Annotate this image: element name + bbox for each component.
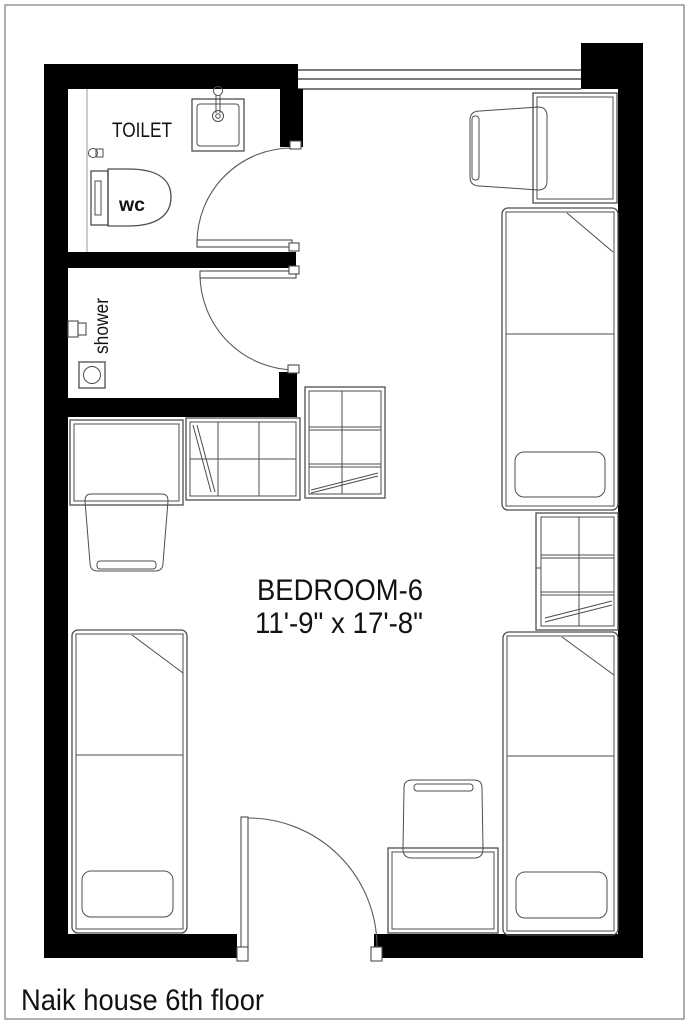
- shower-room-label: shower: [92, 297, 113, 354]
- chair-seat: [403, 780, 483, 858]
- toilet-door: [197, 141, 301, 251]
- shelf-unit-center: [186, 418, 300, 500]
- door-stop: [289, 243, 299, 251]
- shower-mixer-icon: [68, 321, 86, 337]
- door-stop: [371, 947, 382, 961]
- desk-middle-left: [70, 420, 183, 505]
- chair-backrest: [472, 116, 479, 180]
- chair-backrest: [414, 784, 473, 791]
- bed-right-lower: [503, 632, 618, 935]
- chair-backrest: [97, 561, 156, 569]
- wall-column-shower-door: [279, 372, 297, 417]
- bed-fold-mark: [567, 213, 613, 252]
- sink-drain-icon: [213, 111, 224, 122]
- wall-column-toilet-door: [280, 89, 303, 147]
- wc-label: wc: [118, 195, 145, 216]
- toilet-door-swing-arc: [197, 148, 292, 243]
- wall-bottom-left: [44, 934, 237, 958]
- chair-seat: [470, 107, 547, 190]
- pillow: [82, 871, 173, 917]
- desk-bottom: [388, 848, 498, 933]
- window-top: [298, 70, 581, 89]
- entry-door-leaf: [241, 817, 248, 950]
- pillow: [516, 872, 607, 918]
- toilet-room-label: TOILET: [112, 119, 172, 142]
- door-stop: [289, 266, 299, 274]
- wall-shower-south: [68, 398, 297, 417]
- page-border: [5, 5, 684, 1019]
- wardrobe-right: [536, 513, 618, 630]
- shower-door-leaf: [200, 271, 296, 278]
- room-name-label: BEDROOM-6: [257, 574, 423, 607]
- shelf-brace: [311, 473, 378, 490]
- wall-right: [618, 89, 643, 958]
- wall-left: [44, 64, 68, 958]
- door-stop: [237, 947, 248, 961]
- bed-fold-mark: [132, 635, 183, 673]
- toilet-door-leaf: [197, 240, 292, 247]
- bed-right-upper: [502, 208, 618, 510]
- chair-top-right: [470, 107, 547, 190]
- pillow: [515, 452, 605, 497]
- entry-door: [237, 817, 382, 961]
- bed-fold-mark: [562, 637, 614, 675]
- entry-door-swing-arc: [248, 818, 377, 947]
- room-dimensions-label: 11'-9" x 17'-8": [255, 607, 423, 640]
- wall-block-top-right: [581, 43, 643, 89]
- chair-bottom: [403, 780, 483, 858]
- wall-top-left: [44, 64, 298, 89]
- shower-door-swing-arc: [200, 274, 296, 370]
- wall-bottom-right: [374, 934, 643, 958]
- door-stop: [288, 365, 299, 373]
- floor-plan-page: TOILET wc shower BEDROOM-6 11'-9" x 17'-…: [0, 0, 695, 1024]
- wall-toilet-shower-divider: [68, 252, 296, 268]
- shelf-unit-right-of-center: [305, 387, 385, 498]
- toilet-paper-holder-icon: [89, 149, 104, 158]
- bed-bottom-left: [72, 630, 187, 933]
- sink: [192, 87, 244, 152]
- door-stop: [290, 141, 301, 149]
- plan-caption: Naik house 6th floor: [21, 984, 264, 1017]
- shower-door: [200, 266, 299, 373]
- floor-plan-drawing: TOILET wc shower BEDROOM-6 11'-9" x 17'-…: [0, 0, 695, 1024]
- shower-drain-icon: [79, 362, 105, 388]
